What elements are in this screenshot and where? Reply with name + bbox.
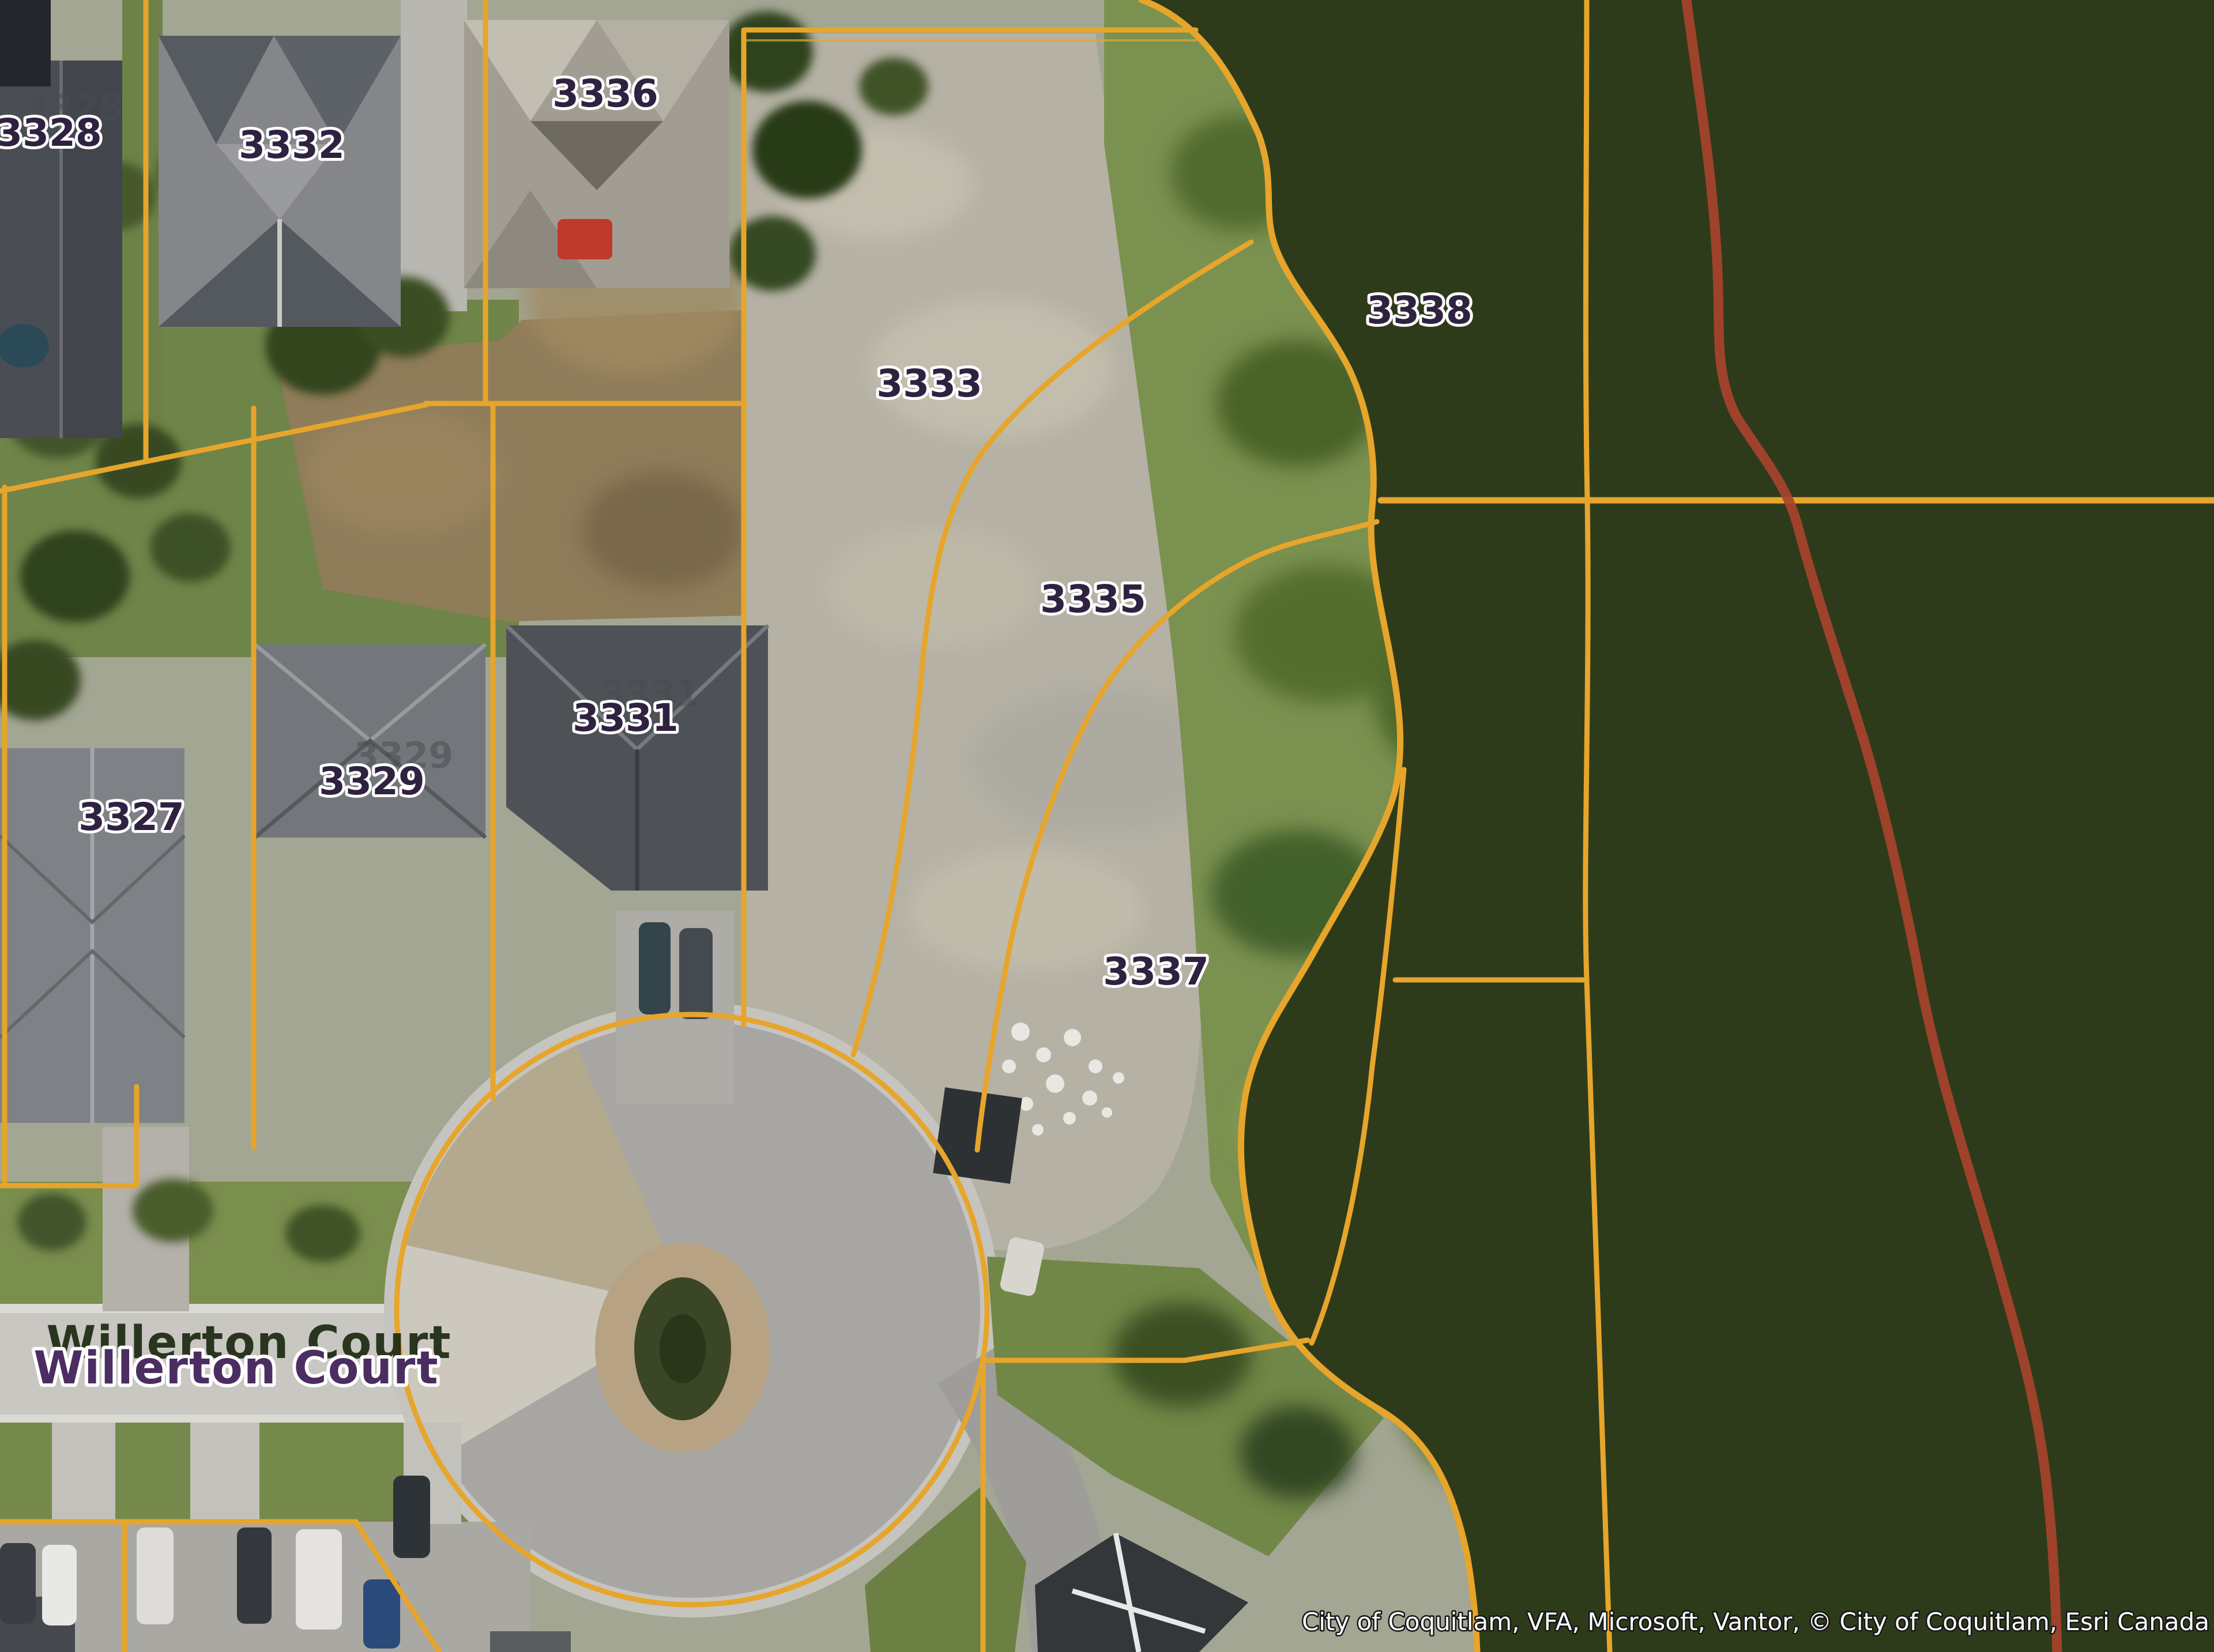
street-label: Willerton Court bbox=[33, 1342, 439, 1394]
parcel-label-3335: 3335 bbox=[1040, 577, 1146, 621]
house-roof-3336 bbox=[464, 20, 729, 288]
map-canvas[interactable]: 3328 3329 3331 3328 3332 3336 3333 3338 … bbox=[0, 0, 2214, 1652]
house-3328-structure bbox=[0, 0, 51, 86]
parcel-label-3329: 3329 bbox=[319, 759, 425, 804]
parcel-label-3327: 3327 bbox=[78, 795, 184, 839]
parcel-label-3338: 3338 bbox=[1366, 288, 1473, 333]
parcel-label-3336: 3336 bbox=[552, 71, 658, 116]
house-roof-3332 bbox=[159, 36, 401, 327]
parcel-label-3337: 3337 bbox=[1103, 949, 1209, 994]
parcel-label-3328: 3328 bbox=[0, 111, 102, 155]
red-yard-object bbox=[558, 219, 612, 259]
attribution-label: City of Coquitlam, VFA, Microsoft, Vanto… bbox=[1302, 1608, 2209, 1636]
house-roof-bottom-left2 bbox=[490, 1631, 571, 1652]
parcel-label-3333: 3333 bbox=[876, 361, 982, 406]
parcel-label-3331: 3331 bbox=[573, 696, 679, 740]
parcel-label-3332: 3332 bbox=[239, 123, 345, 167]
